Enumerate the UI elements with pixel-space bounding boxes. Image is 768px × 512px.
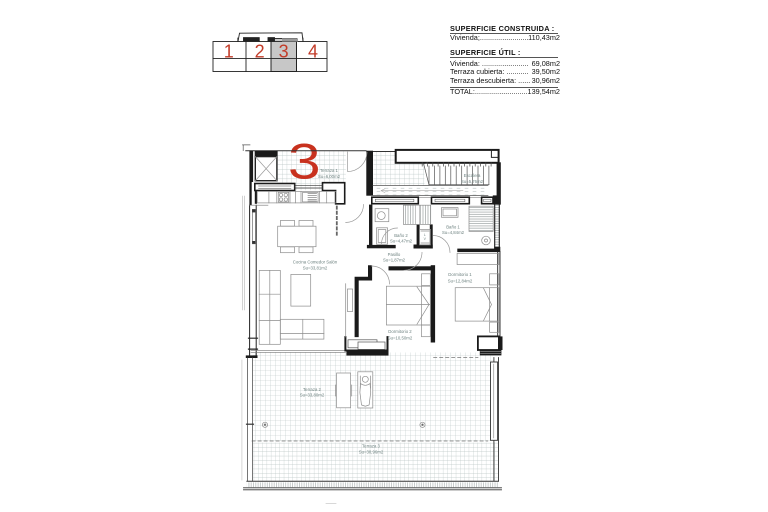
svg-text:Cocina Comedor Salón: Cocina Comedor Salón	[293, 259, 338, 264]
svg-text:Su=33,80m2: Su=33,80m2	[300, 392, 325, 397]
svg-text:4: 4	[308, 42, 318, 62]
svg-text:Su=5,76m2: Su=5,76m2	[461, 179, 484, 184]
svg-text:V: V	[424, 237, 427, 241]
svg-text:3: 3	[288, 134, 321, 190]
svg-text:Baño 1: Baño 1	[446, 225, 460, 230]
svg-text:Su=12,84m2: Su=12,84m2	[448, 278, 473, 283]
svg-text:Dormitorio 1: Dormitorio 1	[448, 272, 472, 277]
svg-text:Su=33,81m2: Su=33,81m2	[303, 265, 328, 270]
svg-text:3: 3	[279, 42, 289, 62]
svg-text:Terraza 1: Terraza 1	[320, 168, 339, 173]
svg-text:Su=6,00m2: Su=6,00m2	[318, 174, 341, 179]
svg-text:Terraza 2: Terraza 2	[303, 387, 322, 392]
svg-text:Dormitorio 2: Dormitorio 2	[388, 329, 412, 334]
svg-text:Pasillo: Pasillo	[388, 252, 401, 257]
svg-text:Su=4,47m2: Su=4,47m2	[390, 239, 413, 244]
svg-text:Baño 2: Baño 2	[394, 233, 408, 238]
svg-text:Su=10,50m2: Su=10,50m2	[388, 336, 413, 341]
svg-text:Su=30,96m2: Su=30,96m2	[359, 450, 384, 455]
svg-text:Escalera: Escalera	[464, 173, 481, 178]
svg-text:1: 1	[224, 42, 234, 62]
svg-text:Su=4,84m2: Su=4,84m2	[442, 230, 465, 235]
svg-text:Terraza 3: Terraza 3	[362, 444, 381, 449]
svg-text:2: 2	[255, 42, 265, 62]
svg-text:Su=1,87m2: Su=1,87m2	[383, 258, 406, 263]
